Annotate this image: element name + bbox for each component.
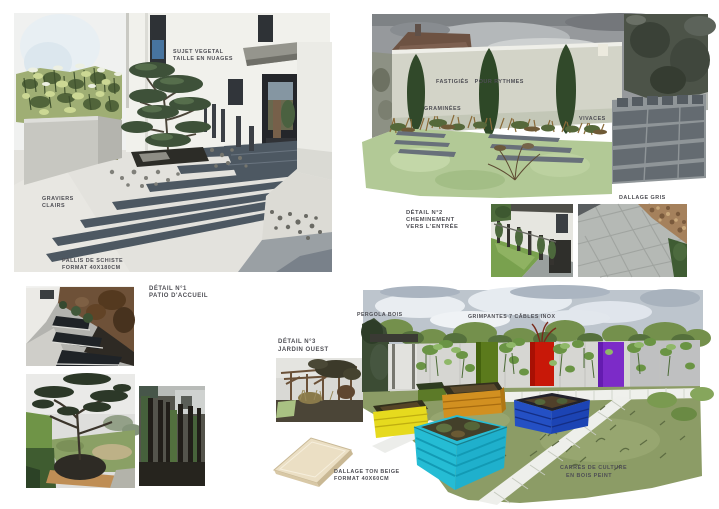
svg-text:FASTIGIÉS POUR RYTHMES: FASTIGIÉS POUR RYTHMES — [436, 77, 524, 85]
svg-text:EN BOIS PEINT: EN BOIS PEINT — [566, 473, 612, 479]
svg-text:VIVACES: VIVACES — [579, 116, 606, 122]
svg-text:JARDIN OUEST: JARDIN OUEST — [278, 347, 329, 353]
svg-text:VERS L'ENTRÉE: VERS L'ENTRÉE — [406, 222, 458, 230]
svg-text:PATIO D'ACCUEIL: PATIO D'ACCUEIL — [149, 293, 208, 299]
svg-text:FORMAT 40X60CM: FORMAT 40X60CM — [334, 476, 389, 482]
svg-text:CARRÉS DE CULTURE: CARRÉS DE CULTURE — [560, 463, 627, 471]
svg-text:CHEMINEMENT: CHEMINEMENT — [406, 217, 455, 223]
svg-text:DALLAGE TON BEIGE: DALLAGE TON BEIGE — [334, 469, 400, 475]
svg-text:SUJET VEGETAL: SUJET VEGETAL — [173, 49, 224, 55]
svg-text:CLAIRS: CLAIRS — [42, 203, 65, 209]
svg-text:PERGOLA BOIS: PERGOLA BOIS — [357, 312, 403, 318]
svg-text:DÉTAIL N°1: DÉTAIL N°1 — [149, 284, 187, 292]
svg-text:GRIMPANTES 7 CÂBLES INOX: GRIMPANTES 7 CÂBLES INOX — [468, 313, 555, 320]
svg-text:TAILLE EN NUAGES: TAILLE EN NUAGES — [173, 56, 233, 62]
svg-text:FORMAT 40X180CM: FORMAT 40X180CM — [62, 265, 121, 271]
svg-text:GRAMINÉES: GRAMINÉES — [424, 104, 461, 112]
svg-text:DALLAGE GRIS: DALLAGE GRIS — [619, 195, 666, 201]
svg-text:GRAVIERS: GRAVIERS — [42, 196, 74, 202]
svg-text:DÉTAIL N°3: DÉTAIL N°3 — [278, 337, 316, 345]
svg-text:DÉTAIL N°2: DÉTAIL N°2 — [406, 208, 443, 216]
svg-text:PALLIS DE SCHISTE: PALLIS DE SCHISTE — [62, 258, 123, 264]
